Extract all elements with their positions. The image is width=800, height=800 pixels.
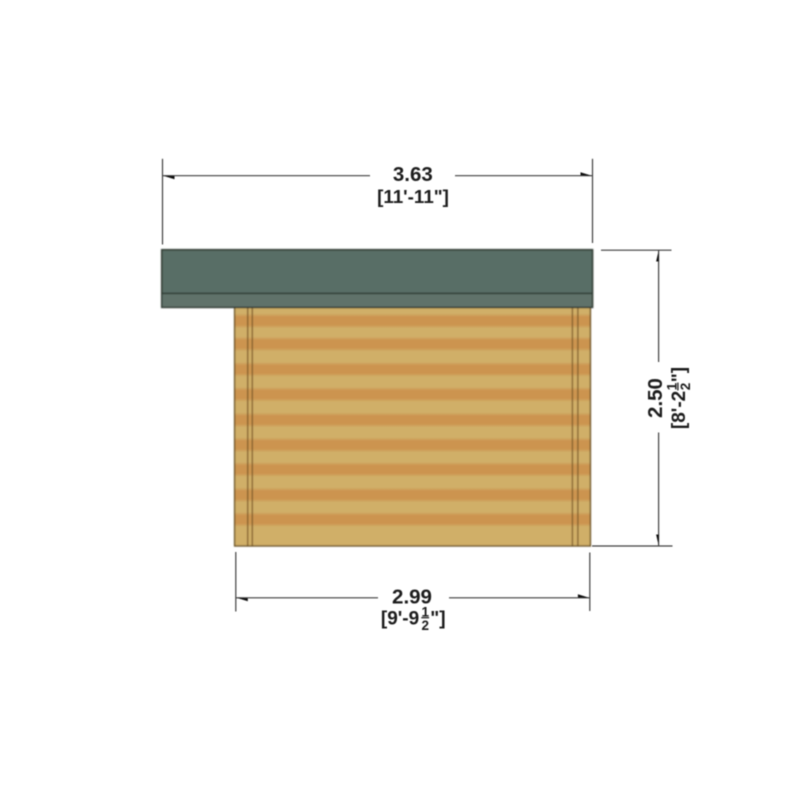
svg-text:2: 2 (678, 383, 693, 391)
svg-text:"]: "] (669, 367, 690, 382)
svg-text:[9'-9: [9'-9 (381, 609, 419, 630)
svg-text:2: 2 (421, 618, 429, 633)
svg-text:[8'-2: [8'-2 (669, 391, 690, 429)
svg-text:[11'-11"]: [11'-11"] (377, 186, 449, 207)
svg-text:"]: "] (430, 609, 445, 630)
svg-text:3.63: 3.63 (393, 163, 433, 186)
